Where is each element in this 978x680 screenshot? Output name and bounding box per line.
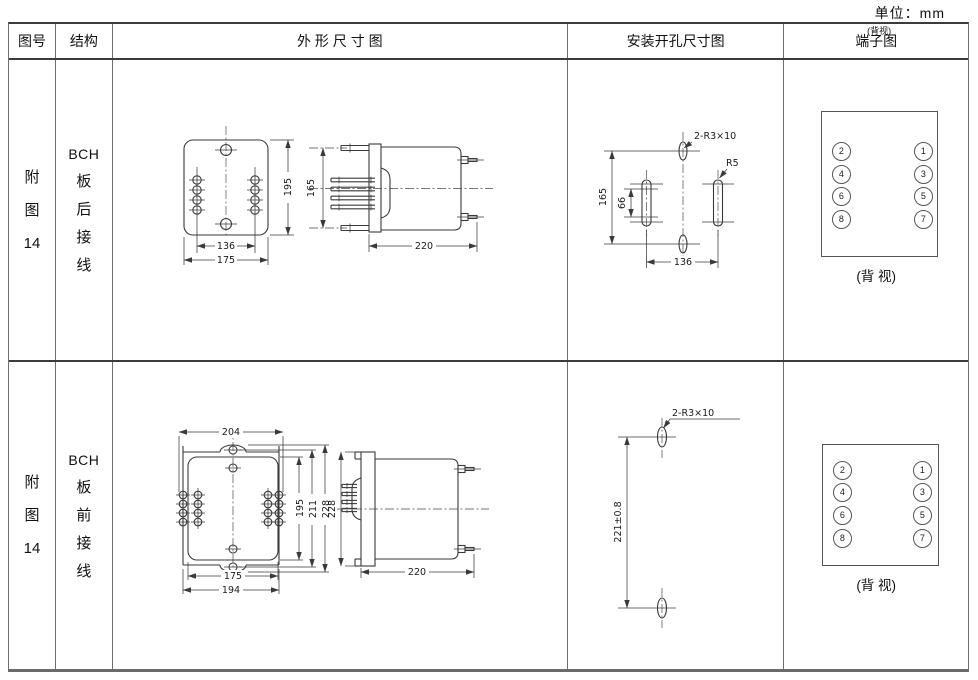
fig-no-char: 图 xyxy=(24,508,39,523)
structure-cell-1: BCH 板 后 接 线 xyxy=(56,60,113,360)
header-structure: 结构 xyxy=(56,24,113,58)
structure-model: BCH xyxy=(68,147,99,161)
radius-callout: R5 xyxy=(726,158,739,169)
terminal-cell-1: 2 4 6 8 1 3 5 7 (背 视) xyxy=(784,60,968,360)
terminal-3: 3 xyxy=(913,483,932,502)
outline-cell-2: 204 xyxy=(113,362,568,669)
structure-char: 后 xyxy=(76,202,91,217)
dim-211: 211 xyxy=(308,500,319,518)
rear-view-caption: (背 视) xyxy=(784,265,968,285)
dim-220: 220 xyxy=(415,241,433,252)
terminal-screws xyxy=(176,488,286,529)
terminal-cell-2: 2 4 6 8 1 3 5 7 (背 视) xyxy=(784,362,968,669)
front-view: 204 xyxy=(176,426,332,596)
terminal-header-note: (背视) xyxy=(867,24,891,37)
terminal-5: 5 xyxy=(913,506,932,525)
terminal-6: 6 xyxy=(833,506,852,525)
dim-165: 165 xyxy=(306,179,317,197)
fig-no-char: 14 xyxy=(24,236,41,251)
outline-cell-1: 195 136 175 165 xyxy=(113,60,568,360)
structure-char: 线 xyxy=(76,564,91,579)
outline-drawing-front: 204 xyxy=(113,362,569,669)
structure-char: 接 xyxy=(76,536,91,551)
terminal-3: 3 xyxy=(914,165,933,184)
outline-drawing-rear: 195 136 175 165 xyxy=(113,60,569,360)
structure-char: 前 xyxy=(76,508,91,523)
row-front-wiring: 附 图 14 BCH 板 前 接 线 xyxy=(9,362,968,669)
dim-228-side: 228 xyxy=(327,500,338,518)
front-view: 195 136 175 xyxy=(184,126,294,266)
terminal-2: 2 xyxy=(832,142,851,161)
mounting-cell-1: 165 66 136 2-R3×10 R5 xyxy=(568,60,785,360)
dim-194: 194 xyxy=(222,585,240,596)
dim-136: 136 xyxy=(674,257,692,268)
terminal-6: 6 xyxy=(832,187,851,206)
left-slot xyxy=(624,170,663,236)
terminal-2: 2 xyxy=(833,461,852,480)
structure-char: 线 xyxy=(76,258,91,273)
rear-view-caption: (背 视) xyxy=(784,574,968,594)
terminal-box: 2 4 6 8 1 3 5 7 xyxy=(821,111,938,257)
structure-char: 板 xyxy=(76,174,91,189)
side-view: 165 xyxy=(306,144,493,253)
dim-175: 175 xyxy=(217,255,235,266)
dim-204: 204 xyxy=(222,427,240,438)
dim-175: 175 xyxy=(224,571,242,582)
side-view: 228 xyxy=(327,452,489,578)
terminal-box: 2 4 6 8 1 3 5 7 xyxy=(822,444,939,566)
fig-no-char: 附 xyxy=(24,475,39,490)
structure-char: 接 xyxy=(76,230,91,245)
mounting-drawing-rear: 165 66 136 2-R3×10 R5 xyxy=(568,60,785,360)
dim-220: 220 xyxy=(408,567,426,578)
terminal-5: 5 xyxy=(914,187,933,206)
fig-no-cell-1: 附 图 14 xyxy=(9,60,56,360)
dim-221: 221±0.8 xyxy=(613,501,624,542)
header-outline: 外 形 尺 寸 图 xyxy=(113,24,568,58)
terminal-8: 8 xyxy=(832,210,851,229)
header-fig-no: 图号 xyxy=(9,24,56,58)
structure-model: BCH xyxy=(68,453,99,467)
dim-136: 136 xyxy=(217,241,235,252)
terminal-4: 4 xyxy=(832,165,851,184)
dim-66: 66 xyxy=(617,197,628,209)
right-slot xyxy=(702,170,734,236)
fig-no-char: 14 xyxy=(24,541,41,556)
terminal-8: 8 xyxy=(833,529,852,548)
spec-table: 图号 结构 外 形 尺 寸 图 安装开孔尺寸图 (背视) 端子图 附 图 14 … xyxy=(8,22,969,672)
fig-no-char: 图 xyxy=(24,203,39,218)
slot-callout: 2-R3×10 xyxy=(672,408,714,419)
terminal-pins xyxy=(342,483,357,513)
unit-label: 单位：mm xyxy=(875,3,945,23)
terminal-7: 7 xyxy=(913,529,932,548)
dim-195: 195 xyxy=(295,499,306,517)
terminal-7: 7 xyxy=(914,210,933,229)
terminal-1: 1 xyxy=(914,142,933,161)
structure-char: 板 xyxy=(76,480,91,495)
page: 单位：mm 图号 结构 外 形 尺 寸 图 安装开孔尺寸图 (背视) 端子图 附… xyxy=(0,0,978,680)
mounting-drawing-front: 221±0.8 2-R3×10 xyxy=(568,362,785,669)
slot-callout: 2-R3×10 xyxy=(694,131,736,142)
structure-cell-2: BCH 板 前 接 线 xyxy=(56,362,113,669)
fig-no-cell-2: 附 图 14 xyxy=(9,362,56,669)
fig-no-char: 附 xyxy=(24,170,39,185)
terminal-pins xyxy=(331,177,375,211)
dim-195: 195 xyxy=(283,178,294,196)
mounting-cell-2: 221±0.8 2-R3×10 xyxy=(568,362,785,669)
terminal-4: 4 xyxy=(833,483,852,502)
row-rear-wiring: 附 图 14 BCH 板 后 接 线 xyxy=(9,60,968,362)
header-terminal-cell: (背视) 端子图 xyxy=(784,24,968,58)
header-row: 图号 结构 外 形 尺 寸 图 安装开孔尺寸图 (背视) 端子图 xyxy=(9,24,968,60)
dim-165: 165 xyxy=(598,188,609,206)
header-mounting: 安装开孔尺寸图 xyxy=(568,24,785,58)
terminal-1: 1 xyxy=(913,461,932,480)
